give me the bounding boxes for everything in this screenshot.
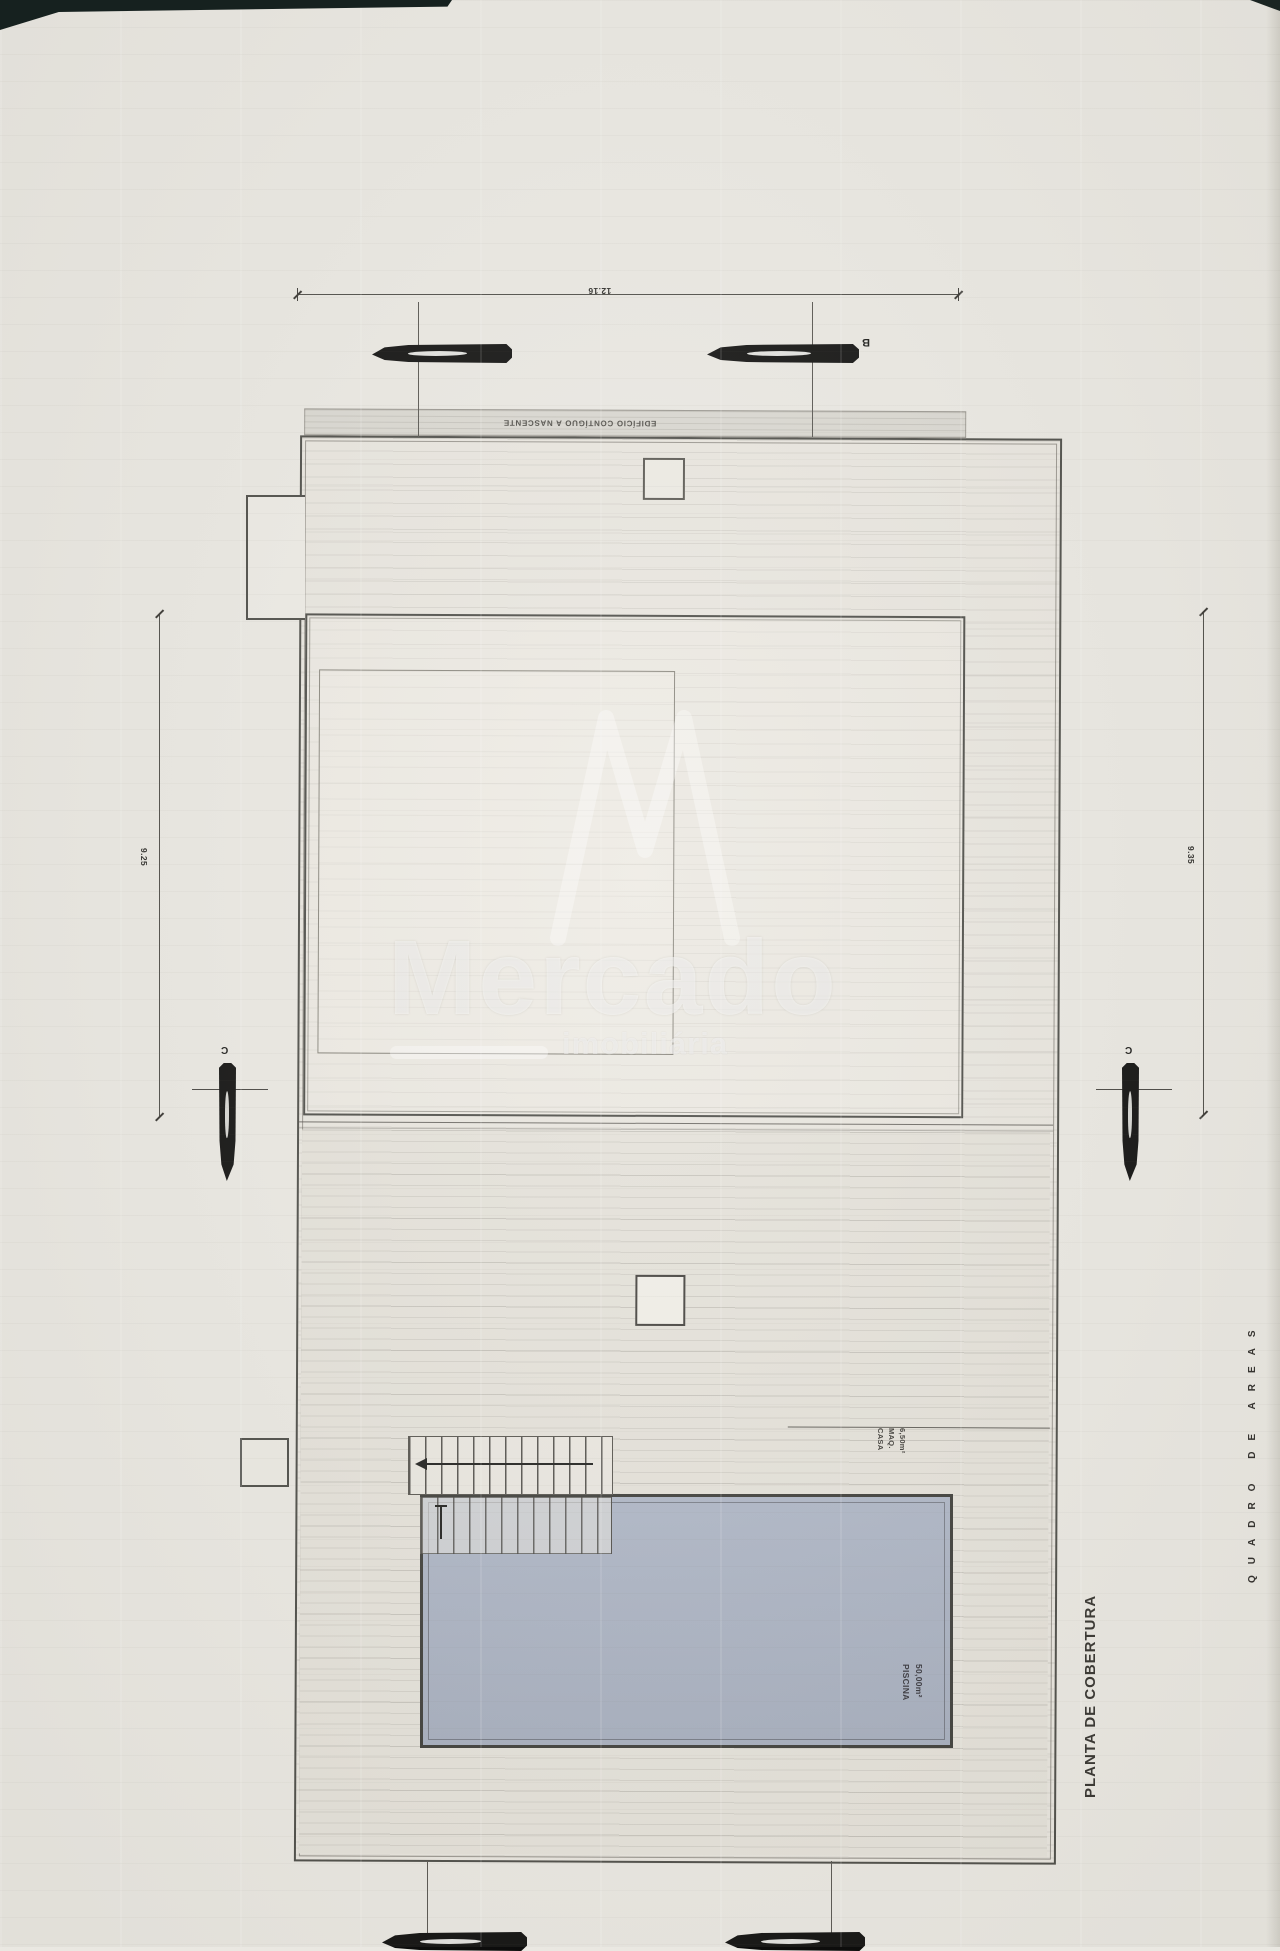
dimension-line-top (297, 294, 959, 295)
roof-skylight-upper (643, 458, 685, 500)
sheet-title: PLANTA DE COBERTURA (1082, 1548, 1099, 1798)
dimension-right-tick-bottom (1199, 1110, 1208, 1119)
section-marker-pen-top-right (707, 344, 859, 363)
pool-label-line2: 50,00m² (914, 1664, 924, 1724)
watermark-illegible-text (390, 1046, 548, 1059)
section-c-letter-left: C (221, 1044, 228, 1055)
left-small-box (240, 1438, 289, 1487)
dimension-right-value: 9.35 (1186, 846, 1196, 882)
adjacent-building-label: EDIFÍCIO CONTÍGUO A NASCENTE (504, 418, 657, 428)
dimension-left-value: 9.25 (139, 848, 149, 884)
machine-house-line3: 6,50m² (898, 1428, 907, 1494)
section-b-line-bottom-left (427, 1861, 428, 1935)
scanned-architectural-sheet: { "sheet": { "title": "PLANTA DE COBERTU… (0, 0, 1280, 1947)
stairs-lower-flight (420, 1497, 612, 1554)
section-marker-pen-bottom-left (382, 1932, 527, 1951)
adjacent-building-band: EDIFÍCIO CONTÍGUO A NASCENTE (304, 408, 966, 438)
stairs-arrow-stem (440, 1505, 442, 1539)
watermark-brand-text: Mercado (388, 918, 838, 1039)
stairs-run-arrowhead-icon (415, 1458, 427, 1470)
mid-wall-line (299, 1121, 1053, 1125)
section-c-letter-right: C (1125, 1044, 1132, 1055)
scan-artifact-top-left (0, 0, 452, 30)
pool-label: PISCINA 50,00m² (901, 1664, 924, 1724)
section-marker-pen-left (219, 1063, 236, 1181)
machine-house-line1: CASA (876, 1428, 885, 1494)
roof-skylight-lower (635, 1275, 685, 1326)
watermark-tagline-text: imobiliária (562, 1026, 728, 1062)
section-marker-pen-bottom-right (725, 1932, 865, 1951)
pool-label-line1: PISCINA (901, 1664, 911, 1724)
machine-house-label: CASA MAQ. 6,50m² (876, 1428, 907, 1494)
stairs-upper-flight (408, 1436, 613, 1495)
section-b-line-bottom-right (831, 1861, 832, 1935)
dimension-line-right (1203, 612, 1204, 1115)
stairs-run-line (425, 1463, 593, 1465)
section-marker-pen-right (1122, 1063, 1139, 1181)
section-b-line-top-left (418, 302, 419, 437)
paper-right-edge-shadow (1266, 0, 1280, 1947)
areas-table-side-label: QUADRO DE AREAS (1247, 1238, 1258, 1583)
machine-house-line2: MAQ. (887, 1428, 896, 1494)
section-b-letter-top: B (862, 336, 870, 348)
dimension-top-value: 12.16 (588, 286, 611, 296)
section-b-line-top-right (812, 302, 813, 437)
dimension-left-tick-bottom (155, 1112, 164, 1121)
left-wall-protrusion (246, 495, 305, 620)
watermark-logo-icon (540, 690, 750, 950)
section-marker-pen-top-left (372, 344, 512, 363)
dimension-line-left (159, 614, 160, 1117)
